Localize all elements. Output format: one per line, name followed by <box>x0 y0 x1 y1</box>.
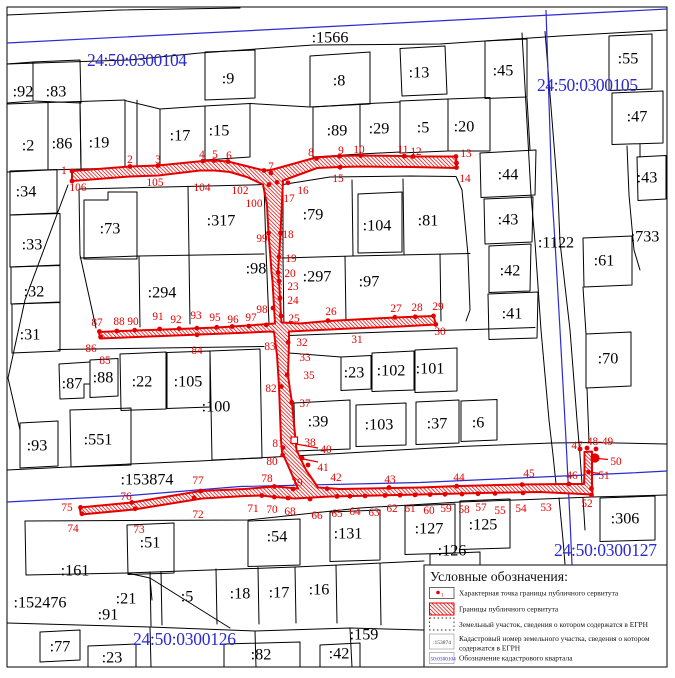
svg-text:52: 52 <box>581 498 593 510</box>
svg-text:79: 79 <box>291 477 303 489</box>
svg-text::34: :34 <box>16 183 37 201</box>
svg-text::317: :317 <box>207 212 236 230</box>
svg-text::87: :87 <box>62 375 83 393</box>
svg-text:87: 87 <box>91 317 103 329</box>
svg-text:57: 57 <box>475 502 487 514</box>
svg-text:35: 35 <box>303 370 315 382</box>
svg-text:24:50:0300104: 24:50:0300104 <box>87 50 187 70</box>
svg-text::93: :93 <box>27 437 48 455</box>
svg-text::54: :54 <box>267 528 288 546</box>
svg-text:18: 18 <box>282 229 294 241</box>
svg-text:50:0300104: 50:0300104 <box>431 657 457 663</box>
svg-text::89: :89 <box>327 122 348 140</box>
svg-text:48-49: 48-49 <box>587 436 614 448</box>
svg-text:Земельный участок, сведения о: Земельный участок, сведения о котором со… <box>459 620 649 629</box>
svg-text:5: 5 <box>212 149 218 161</box>
svg-text::297: :297 <box>303 268 332 286</box>
svg-text::81: :81 <box>418 212 439 230</box>
svg-text::551: :551 <box>84 431 113 449</box>
svg-text:9: 9 <box>338 145 344 157</box>
svg-text:1: 1 <box>61 165 67 177</box>
svg-text:24:50:0300105: 24:50:0300105 <box>537 75 638 95</box>
svg-text:51: 51 <box>598 470 609 482</box>
svg-text:61: 61 <box>404 503 415 515</box>
svg-text:76: 76 <box>120 491 132 503</box>
svg-text:25: 25 <box>288 313 300 325</box>
svg-text:92: 92 <box>170 314 182 326</box>
svg-text:82: 82 <box>265 383 277 395</box>
svg-text:41: 41 <box>317 462 328 474</box>
svg-text:47: 47 <box>571 440 583 452</box>
svg-text:90: 90 <box>127 316 139 328</box>
svg-text::5: :5 <box>417 119 430 137</box>
svg-text:30: 30 <box>434 326 446 338</box>
svg-text::43: :43 <box>498 211 519 229</box>
svg-text::98: :98 <box>246 260 267 278</box>
svg-text::8: :8 <box>333 72 346 90</box>
svg-text:70: 70 <box>266 504 278 516</box>
svg-text::17: :17 <box>170 127 191 145</box>
svg-text::31: :31 <box>20 326 41 344</box>
svg-text:Характерная точка границы публ: Характерная точка границы публичного сер… <box>459 589 619 598</box>
svg-text:84: 84 <box>191 345 203 357</box>
svg-text::19: :19 <box>89 134 110 152</box>
svg-text::153874: :153874 <box>120 471 173 489</box>
svg-text::23: :23 <box>102 649 123 667</box>
svg-text:44: 44 <box>453 472 465 484</box>
svg-text:32: 32 <box>296 337 308 349</box>
svg-text::153874: :153874 <box>433 640 451 646</box>
svg-text:26: 26 <box>325 306 337 318</box>
svg-text::306: :306 <box>611 510 640 528</box>
svg-text::79: :79 <box>303 206 324 224</box>
svg-text::127: :127 <box>415 520 444 538</box>
svg-text::91: :91 <box>98 606 119 624</box>
svg-text:71: 71 <box>247 503 258 515</box>
svg-text:19: 19 <box>285 253 297 265</box>
svg-text:23: 23 <box>287 281 299 293</box>
svg-text::83: :83 <box>46 83 67 101</box>
svg-text::43: :43 <box>637 169 658 187</box>
svg-text:43: 43 <box>384 474 396 486</box>
svg-text:68: 68 <box>284 506 296 518</box>
svg-text::21: :21 <box>116 590 137 608</box>
svg-text:83: 83 <box>264 341 276 353</box>
svg-text::161: :161 <box>61 562 90 580</box>
svg-text:100: 100 <box>246 198 263 210</box>
svg-text:содержатся в ЕГРН: содержатся в ЕГРН <box>459 644 521 653</box>
svg-text::92: :92 <box>13 83 34 101</box>
svg-text:45: 45 <box>523 468 535 480</box>
svg-text::39: :39 <box>308 413 329 431</box>
svg-text:105: 105 <box>147 177 164 189</box>
svg-text:81: 81 <box>272 438 283 450</box>
svg-text:102: 102 <box>232 185 249 197</box>
svg-text:7: 7 <box>268 161 274 173</box>
svg-text:24:50:0300126: 24:50:0300126 <box>133 629 236 649</box>
svg-text:97: 97 <box>245 312 257 324</box>
svg-text::61: :61 <box>594 252 615 270</box>
svg-text:50: 50 <box>610 456 622 468</box>
svg-text:85: 85 <box>99 355 111 367</box>
svg-text::6: :6 <box>472 414 485 432</box>
svg-text::77: :77 <box>50 638 71 656</box>
svg-text:106: 106 <box>70 182 87 194</box>
svg-text:3: 3 <box>155 154 161 166</box>
svg-text:93: 93 <box>190 310 202 322</box>
svg-text:2: 2 <box>127 154 133 166</box>
svg-text:63: 63 <box>368 507 380 519</box>
svg-text:88: 88 <box>113 316 125 328</box>
svg-text:58: 58 <box>458 504 470 516</box>
svg-text:24: 24 <box>287 295 299 307</box>
svg-text::126: :126 <box>438 542 467 560</box>
svg-text::37: :37 <box>427 415 448 433</box>
svg-text:Кадастровый номер земельного у: Кадастровый номер земельного участка, св… <box>459 634 650 643</box>
svg-text:95: 95 <box>209 312 221 324</box>
svg-text:65: 65 <box>331 508 343 520</box>
svg-text::55: :55 <box>618 50 639 68</box>
svg-text::18: :18 <box>230 585 251 603</box>
svg-text::100: :100 <box>202 398 231 416</box>
svg-text::33: :33 <box>22 236 43 254</box>
svg-text:13: 13 <box>460 148 472 160</box>
svg-text::42: :42 <box>500 262 521 280</box>
svg-text::159: :159 <box>350 626 379 644</box>
svg-text:12: 12 <box>410 146 422 158</box>
svg-text:72: 72 <box>192 509 204 521</box>
svg-text::73: :73 <box>100 220 121 238</box>
svg-text::42: :42 <box>329 645 350 663</box>
svg-text::29: :29 <box>369 120 390 138</box>
svg-text:17: 17 <box>283 193 295 205</box>
svg-text:10: 10 <box>353 144 365 156</box>
svg-text:54: 54 <box>515 503 527 515</box>
svg-text:20: 20 <box>284 268 296 280</box>
svg-text:28: 28 <box>411 302 423 314</box>
svg-text:91: 91 <box>152 311 163 323</box>
svg-text:27: 27 <box>390 303 402 315</box>
svg-text:42: 42 <box>330 472 342 484</box>
svg-text:77: 77 <box>192 475 204 487</box>
svg-text::1122: :1122 <box>538 234 574 252</box>
svg-text:80: 80 <box>266 456 278 468</box>
svg-text:Границы публичного сервитута: Границы публичного сервитута <box>459 605 559 614</box>
svg-text:59: 59 <box>440 503 452 515</box>
svg-text::88: :88 <box>93 369 114 387</box>
svg-text:Условные обозначения:: Условные обозначения: <box>430 569 568 584</box>
svg-text:66: 66 <box>311 510 323 522</box>
svg-text:29: 29 <box>432 301 444 313</box>
svg-text::1566: :1566 <box>312 29 349 47</box>
svg-text::2: :2 <box>22 137 35 155</box>
svg-text::103: :103 <box>365 416 394 434</box>
svg-text::104: :104 <box>363 217 392 235</box>
svg-text:33: 33 <box>299 352 311 364</box>
svg-text::105: :105 <box>174 373 203 391</box>
svg-text::22: :22 <box>132 373 153 391</box>
svg-text:Обозначение кадастрового кварт: Обозначение кадастрового квартала <box>459 654 573 663</box>
svg-text:78: 78 <box>261 473 273 485</box>
svg-text:62: 62 <box>386 503 398 515</box>
svg-text::131: :131 <box>334 525 363 543</box>
svg-text:16: 16 <box>297 185 309 197</box>
svg-text::97: :97 <box>359 273 380 291</box>
svg-text::44: :44 <box>498 166 519 184</box>
svg-text::152476: :152476 <box>13 594 66 612</box>
svg-text:6: 6 <box>226 150 232 162</box>
svg-text::5: :5 <box>181 588 194 606</box>
svg-text:14: 14 <box>459 173 471 185</box>
svg-text:64: 64 <box>349 506 361 518</box>
svg-text:74: 74 <box>67 523 79 535</box>
svg-text::9: :9 <box>222 70 235 88</box>
svg-text:38: 38 <box>304 437 316 449</box>
svg-text::733: :733 <box>631 228 660 246</box>
svg-text:31: 31 <box>351 334 362 346</box>
svg-text::101: :101 <box>416 360 445 378</box>
svg-text::17: :17 <box>269 584 290 602</box>
svg-text:98: 98 <box>256 304 268 316</box>
svg-text:99: 99 <box>256 233 268 245</box>
svg-text:60: 60 <box>423 505 435 517</box>
svg-text:75: 75 <box>61 502 73 514</box>
svg-text:40: 40 <box>320 444 332 456</box>
svg-text:24:50:0300127: 24:50:0300127 <box>554 540 657 560</box>
svg-text:104: 104 <box>194 182 211 194</box>
svg-text:46: 46 <box>566 470 578 482</box>
svg-text::45: :45 <box>493 62 514 80</box>
svg-text:53: 53 <box>540 502 552 514</box>
svg-text:37: 37 <box>299 398 311 410</box>
svg-text::16: :16 <box>309 581 330 599</box>
svg-text::70: :70 <box>598 350 619 368</box>
svg-text::86: :86 <box>52 135 73 153</box>
svg-text::51: :51 <box>140 534 161 552</box>
svg-text::47: :47 <box>627 108 648 126</box>
svg-text:4: 4 <box>199 149 205 161</box>
svg-text::13: :13 <box>409 64 430 82</box>
svg-text::294: :294 <box>148 284 177 302</box>
svg-text::102: :102 <box>377 362 406 380</box>
svg-text::15: :15 <box>209 122 230 140</box>
svg-text:11: 11 <box>398 144 409 156</box>
svg-text:96: 96 <box>227 314 239 326</box>
svg-text:15: 15 <box>332 173 344 185</box>
svg-text::32: :32 <box>24 283 45 301</box>
svg-text::41: :41 <box>502 305 523 323</box>
svg-text::23: :23 <box>344 364 365 382</box>
svg-text::20: :20 <box>454 118 475 136</box>
svg-text::125: :125 <box>469 516 498 534</box>
svg-text:86: 86 <box>85 343 97 355</box>
svg-text:8: 8 <box>308 147 314 159</box>
svg-text::82: :82 <box>251 646 272 664</box>
